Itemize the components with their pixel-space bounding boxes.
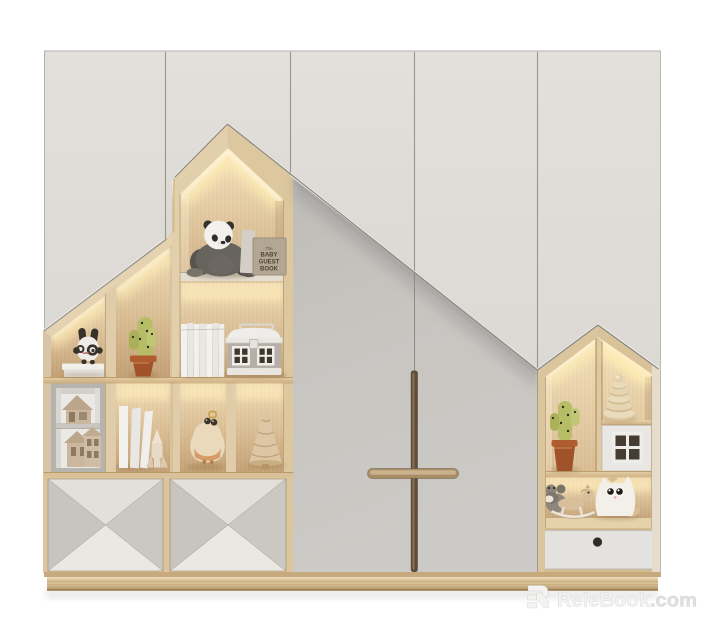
svg-text:BOOK: BOOK [260, 267, 279, 273]
svg-text:ReleBook.com: ReleBook.com [557, 590, 697, 612]
svg-text:The: The [265, 246, 273, 251]
svg-text:BABY: BABY [260, 253, 277, 259]
svg-text:GUEST: GUEST [259, 260, 280, 266]
